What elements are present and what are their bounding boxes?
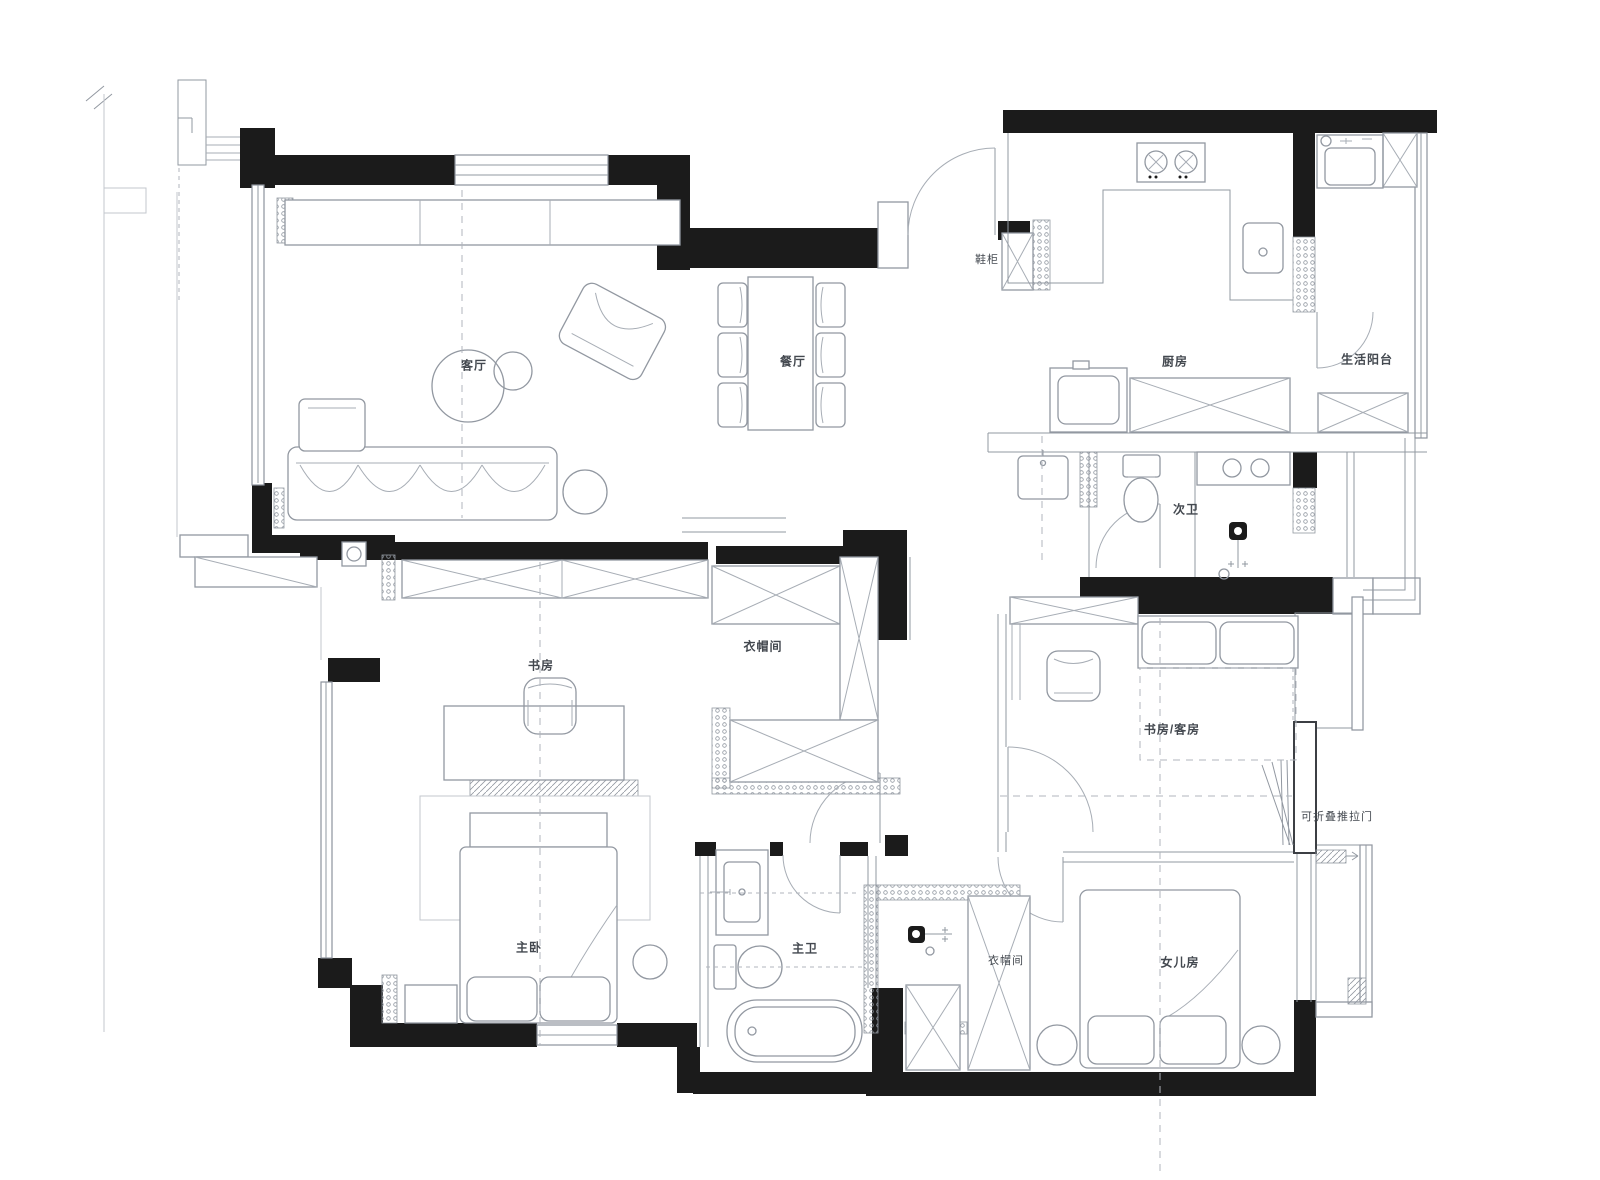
nightstand-icon (1037, 1025, 1077, 1065)
entry-door-icon (908, 148, 995, 235)
bed-icon (460, 847, 617, 1023)
floor-plan-drawing (0, 0, 1600, 1180)
nightstand-icon (633, 945, 667, 979)
folding-door-icon (1262, 722, 1366, 1004)
bathtub-icon (727, 1000, 862, 1062)
kitchen-sink-icon (1243, 223, 1283, 273)
daughter-room-furniture (1037, 890, 1280, 1068)
coffee-table-small-icon (494, 352, 532, 390)
laundry-sink-icon (1317, 135, 1383, 188)
room-label-kitchen: 厨房 (1162, 353, 1188, 370)
bed-icon (1080, 890, 1240, 1068)
armchair-icon (556, 280, 669, 383)
hall-basin-icon (1018, 450, 1068, 499)
room-label-study: 书房 (528, 657, 554, 674)
room-label-service-balcony: 生活阳台 (1341, 351, 1393, 368)
guest-room-furniture (1047, 616, 1298, 760)
living-room-furniture (288, 280, 669, 520)
shower-head-icon (1219, 522, 1248, 579)
shower-counter-icon (1197, 452, 1290, 485)
room-label-shoe-cabinet: 鞋柜 (975, 251, 999, 267)
armchair-icon (1047, 651, 1100, 701)
room-label-dining-room: 餐厅 (780, 353, 806, 370)
room-label-study-guest-room: 书房/客房 (1144, 721, 1200, 738)
headboard-icon (470, 813, 607, 847)
second-bathroom-fixtures (1018, 450, 1290, 579)
room-label-closet-2: 衣帽间 (988, 952, 1024, 968)
fridge-icon (1050, 361, 1127, 432)
room-label-daughter-room: 女儿房 (1160, 954, 1199, 971)
toilet-icon (1123, 455, 1160, 522)
duct-shaft (178, 80, 240, 300)
side-table-icon (563, 470, 607, 514)
nightstand-icon (1242, 1026, 1280, 1064)
room-label-second-bathroom: 次卫 (1173, 501, 1199, 518)
stove-icon (1137, 143, 1205, 182)
floor-plan: 客厅 餐厅 鞋柜 厨房 生活阳台 次卫 书房 衣帽间 书房/客房 可折叠推拉门 … (0, 0, 1600, 1180)
sofa-bed-icon (1138, 616, 1298, 760)
sofa-icon (288, 399, 557, 520)
room-label-master-bathroom: 主卫 (792, 940, 818, 957)
room-label-walk-in-closet: 衣帽间 (743, 638, 782, 655)
guest-room-door-icon (1008, 747, 1093, 832)
shower-head-icon (908, 926, 952, 955)
room-label-living-room: 客厅 (461, 357, 487, 374)
master-bath-door-icon (783, 855, 840, 913)
label-folding-sliding-door: 可折叠推拉门 (1301, 808, 1373, 824)
study-furniture (444, 678, 638, 796)
desk-icon (444, 706, 624, 780)
room-label-master-bedroom: 主卧 (516, 939, 542, 956)
